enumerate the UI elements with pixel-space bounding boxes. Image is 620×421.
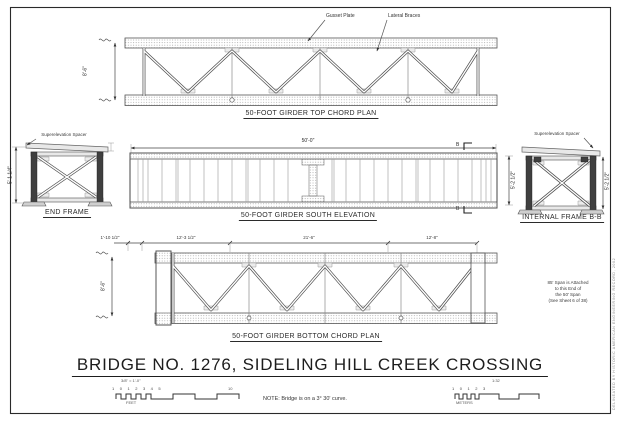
top-plan-caption: 50-FOOT GIRDER TOP CHORD PLAN [243,110,378,119]
bottom-plan-dim-3: 21'-6" [303,236,314,241]
elevation-caption: 50-FOOT GIRDER SOUTH ELEVATION [239,212,377,221]
south-elevation-drawing [130,143,513,213]
margin-credit: DELINEATED BY HISTORIC AMERICAN ENGINEER… [612,258,616,410]
elevation-depth-dim: 5'-2 1/2" [511,171,517,189]
superelevation-spacer-shape [522,147,600,156]
drawing-sheet: Gusset Plate Lateral Braces 8'-6" 50-FOO… [0,0,620,421]
meters-scale-numbers: 1 0 1 2 3 [452,387,487,391]
feet-scale-bar [116,394,239,399]
bottom-plan-dim-1: 1'-10 1/2" [101,236,120,241]
curve-note: NOTE: Bridge is on a 3° 30' curve. [263,396,347,402]
centerline-icon [99,99,111,101]
lateral-braces-label: Lateral Braces [388,14,420,20]
bottom-plan-dim-4: 12'-8" [426,236,437,241]
sheet-title: BRIDGE NO. 1276, SIDELING HILL CREEK CRO… [72,356,548,377]
internal-frame-drawing [518,138,604,214]
feet-scale-unit: FEET [126,401,136,405]
title-scale-left: 3/8" = 1'-0" [121,379,141,383]
top-chord-plan-drawing [99,20,497,106]
meters-scale-unit: METERS [456,401,473,405]
section-cut-flag-top [464,143,472,150]
attach-note-line: (See Sheet 6 of 38) [548,299,587,304]
internal-frame-caption: INTERNAL FRAME B-B [520,214,604,223]
gusset-plate-label: Gusset Plate [326,14,355,20]
section-letter-top: B [456,143,459,149]
bottom-plan-dim-2: 12'-3 1/2" [177,236,196,241]
title-scale-right: 1:32 [492,379,500,383]
bottom-plan-caption: 50-FOOT GIRDER BOTTOM CHORD PLAN [230,333,382,342]
superelevation-spacer-shape [26,143,108,152]
internal-frame-spacer-label: Superelevation Spacer [534,132,580,137]
end-frame-caption: END FRAME [43,209,91,218]
feet-scale-end-number: 10 [228,387,232,391]
bottom-chord-plan-drawing [96,241,497,325]
elevation-span-dim: 50'-0" [302,139,315,145]
end-frame-height-dim: 5'-1 1/4" [8,166,14,184]
bottom-plan-width-dim: 8'-6" [101,281,107,291]
feet-scale-numbers: 1 0 1 2 3 4 5 [112,387,163,391]
centerline-icon [96,252,108,254]
end-frame-spacer-label: Superelevation Spacer [41,133,87,138]
section-letter-bottom: B [456,207,459,213]
internal-frame-height-dim: 5'-2 1/2" [605,172,611,190]
centerline-icon [99,39,111,41]
meters-scale-bar [455,394,539,399]
centerline-icon [96,316,108,318]
top-plan-width-dim: 8'-6" [83,66,89,76]
end-frame-drawing [12,139,114,206]
